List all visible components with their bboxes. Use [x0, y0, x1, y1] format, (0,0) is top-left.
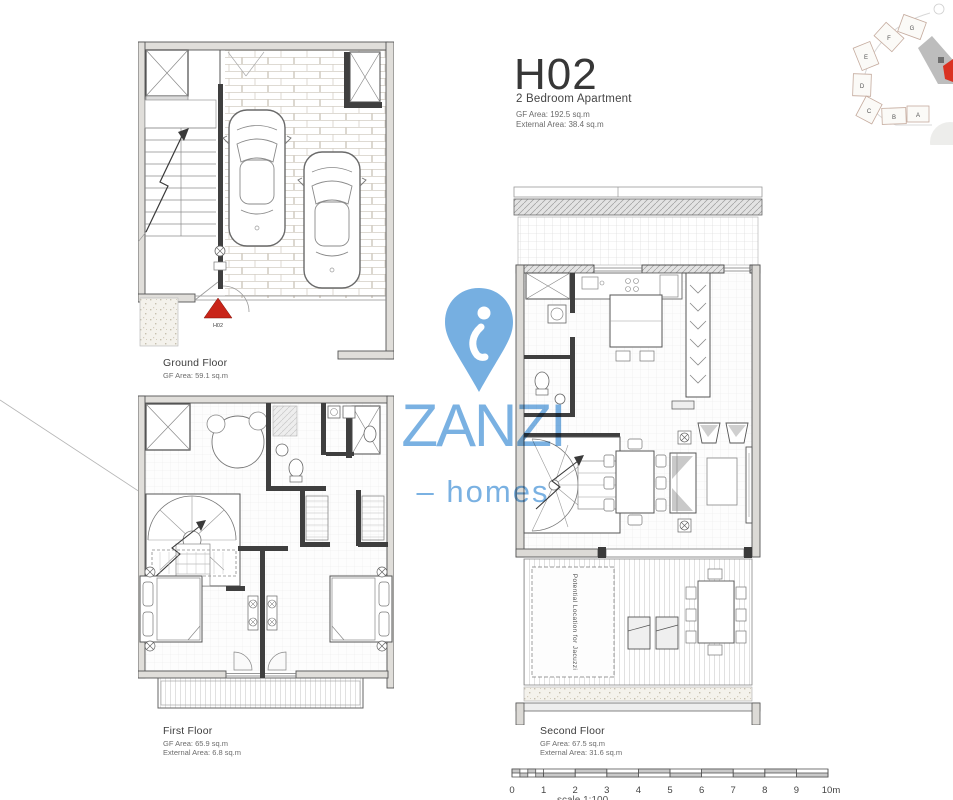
svg-text:4: 4 — [636, 785, 641, 796]
sink — [276, 444, 288, 456]
bed — [140, 576, 202, 642]
floorplan-sheet: H02 — [0, 0, 953, 800]
washing-machine — [548, 305, 566, 323]
car-top-view — [298, 152, 366, 288]
floor-external-area: External Area: 6.8 sq.m — [163, 749, 241, 758]
bed — [330, 576, 392, 642]
planter — [524, 687, 752, 701]
floor-area: GF Area: 59.1 sq.m — [163, 372, 228, 381]
closet — [362, 496, 384, 540]
jacuzzi-note: Potential Location for Jacuzzi — [571, 574, 578, 671]
svg-text:G: G — [910, 26, 915, 32]
unit-external-area: External Area: 38.4 sq.m — [516, 120, 604, 130]
upper-terrace — [518, 217, 758, 265]
floor-name: Ground Floor — [163, 357, 228, 369]
scale-note: scale 1:100 — [557, 795, 608, 800]
ground-floor-label: Ground Floor GF Area: 59.1 sq.m — [163, 357, 228, 381]
site-units — [853, 14, 929, 124]
planter — [140, 298, 178, 346]
svg-text:F: F — [887, 36, 891, 42]
roof-wall — [514, 199, 762, 215]
sofa — [670, 453, 696, 513]
marker-label: H02 — [213, 323, 223, 329]
svg-text:10m: 10m — [822, 785, 841, 796]
brand-tagline: – homes — [388, 474, 578, 510]
north-symbol — [934, 4, 944, 14]
svg-text:9: 9 — [794, 785, 799, 796]
svg-text:C: C — [867, 109, 872, 115]
elevator-shaft — [146, 404, 190, 450]
svg-text:8: 8 — [762, 785, 767, 796]
unit-gf-area: GF Area: 192.5 sq.m — [516, 110, 604, 120]
lower-terrace: Potential Location for Jacuzzi — [516, 559, 760, 725]
wall-unit — [672, 401, 694, 409]
toilet — [289, 459, 303, 477]
site-key-plan: G F E D C B A — [838, 0, 953, 145]
toilet — [364, 426, 376, 442]
svg-text:1: 1 — [541, 785, 546, 796]
closet — [306, 496, 328, 540]
jacuzzi-zone: Potential Location for Jacuzzi — [532, 567, 614, 677]
svg-text:D: D — [860, 84, 865, 90]
coffee-table — [707, 458, 737, 505]
floor-name: First Floor — [163, 725, 241, 737]
duct-shaft — [526, 273, 570, 299]
unit-areas: GF Area: 192.5 sq.m External Area: 38.4 … — [516, 110, 604, 129]
first-floor-plan — [138, 390, 394, 725]
stair-leader-line — [0, 392, 146, 522]
ground-floor-plan: H02 — [138, 36, 394, 366]
elevator-shaft — [146, 50, 188, 102]
tagline-word: homes — [446, 474, 549, 509]
garage-wall — [218, 84, 223, 289]
duct-shaft — [344, 52, 382, 108]
svg-text:B: B — [892, 115, 896, 121]
site-landscape — [930, 122, 953, 145]
feature-unit — [686, 273, 710, 397]
car-top-view — [223, 110, 291, 246]
floor-name: Second Floor — [540, 725, 622, 737]
svg-text:5: 5 — [667, 785, 672, 796]
floor-external-area: External Area: 31.6 sq.m — [540, 749, 622, 758]
svg-text:7: 7 — [731, 785, 736, 796]
shower — [273, 406, 297, 436]
balcony — [158, 678, 363, 708]
brand-wordmark: ZANZI — [388, 396, 578, 456]
svg-text:E: E — [864, 55, 868, 61]
svg-text:A: A — [916, 113, 920, 119]
unit-subtitle: 2 Bedroom Apartment — [516, 93, 632, 105]
bedroom-partition — [260, 550, 265, 678]
parapet — [514, 187, 762, 197]
first-floor-label: First Floor GF Area: 65.9 sq.m External … — [163, 725, 241, 757]
second-floor-label: Second Floor GF Area: 67.5 sq.m External… — [540, 725, 622, 757]
staircase — [138, 100, 216, 242]
svg-text:6: 6 — [699, 785, 704, 796]
brand-pin-icon — [442, 286, 516, 396]
svg-text:0: 0 — [509, 785, 514, 796]
entrance-marker: H02 — [204, 298, 232, 329]
tagline-dash: – — [417, 474, 436, 509]
